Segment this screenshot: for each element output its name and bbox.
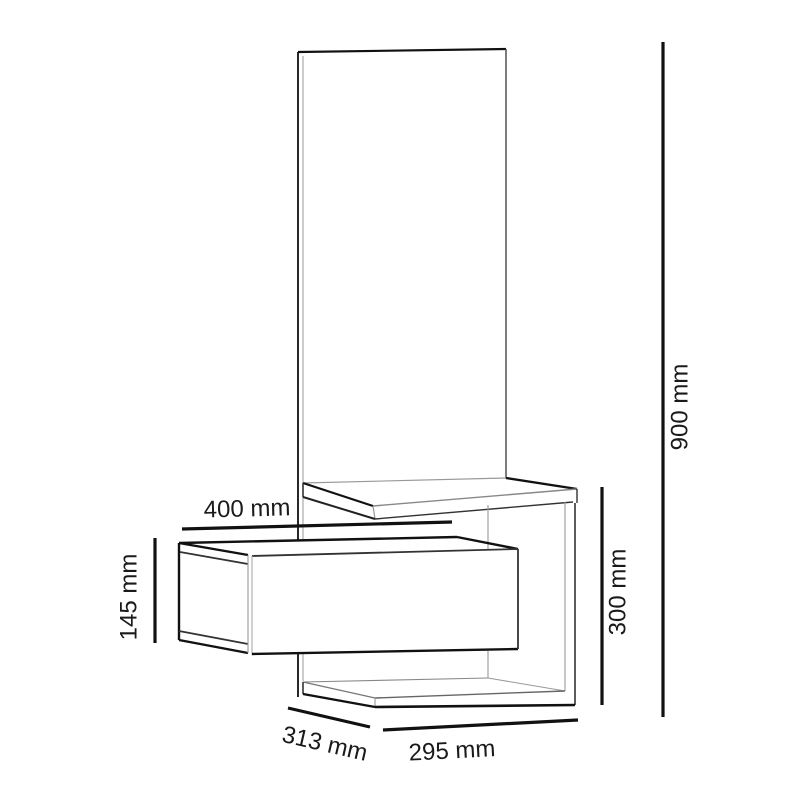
- label-depth: 313 mm: [280, 721, 371, 767]
- drawer-top-back-edge: [179, 537, 457, 543]
- shelf-front-bottom-edge: [375, 502, 573, 519]
- wall-panel: [298, 49, 506, 697]
- bottom-right-depth-edge: [488, 678, 565, 691]
- bottom-back-edge: [303, 678, 488, 682]
- label-drawer-width: 400 mm: [203, 494, 290, 523]
- label-total-height: 900 mm: [666, 364, 693, 451]
- bottom-shelf: [303, 678, 575, 707]
- shelf-left-depth-edge: [303, 483, 373, 506]
- side-panel: [488, 502, 575, 705]
- shelf-back-edge: [303, 478, 506, 483]
- furniture-drawing: 400 mm 145 mm 900 mm 300 mm 313 mm 295 m…: [0, 0, 800, 800]
- panel-top-edge: [298, 49, 506, 52]
- label-drawer-height: 145 mm: [115, 554, 142, 641]
- drawer-top-front-edge: [252, 549, 518, 556]
- dimension-lines: [155, 42, 663, 730]
- drawer-front-bottom-edge: [252, 649, 518, 654]
- drawer: [179, 537, 518, 655]
- shelf-left-bottom-edge: [303, 497, 375, 519]
- bottom-front-edge: [375, 691, 565, 698]
- dim-line-base-width: [383, 720, 578, 730]
- shelf-right-depth-edge: [506, 478, 577, 489]
- dimension-diagram: 400 mm 145 mm 900 mm 300 mm 313 mm 295 m…: [0, 0, 800, 800]
- bottom-front-bottom-edge: [375, 705, 575, 707]
- shelf-front-edge: [373, 489, 577, 506]
- label-open-section-height: 300 mm: [604, 549, 631, 636]
- shelf-corner-seam: [373, 506, 375, 519]
- label-base-width: 295 mm: [408, 735, 496, 767]
- middle-shelf: [303, 478, 577, 519]
